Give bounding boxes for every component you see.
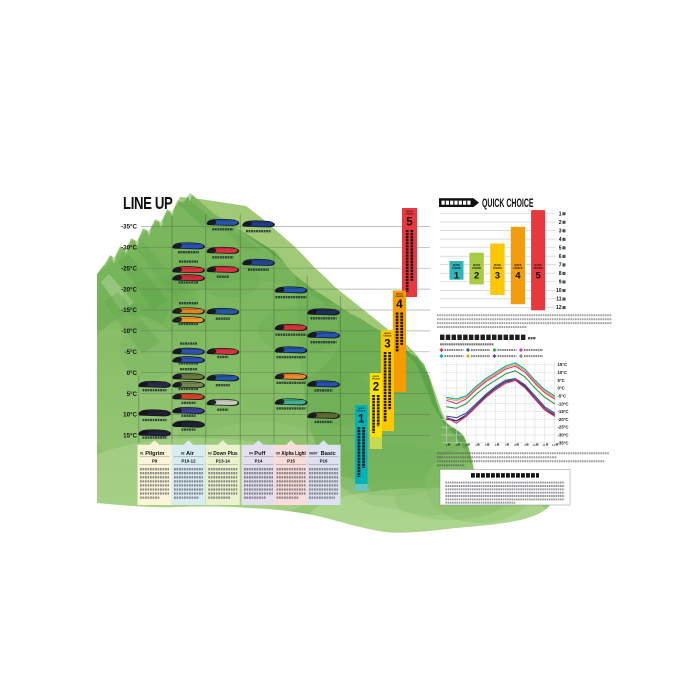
svg-text:1: 1	[358, 414, 365, 426]
svg-text:Air: Air	[186, 451, 195, 457]
svg-text:1: 1	[559, 211, 562, 217]
svg-text:-25°C: -25°C	[121, 265, 137, 272]
svg-text:12: 12	[552, 443, 556, 447]
svg-text:8: 8	[514, 443, 516, 447]
svg-text:1: 1	[454, 270, 460, 281]
svg-text:06/07: 06/07	[309, 452, 318, 456]
svg-text:-20°C: -20°C	[121, 286, 137, 293]
svg-text:5: 5	[406, 217, 413, 229]
svg-text:12: 12	[556, 305, 562, 311]
svg-text:8: 8	[559, 271, 562, 277]
svg-text:-35°C: -35°C	[121, 224, 137, 231]
svg-text:10: 10	[556, 288, 562, 294]
svg-text:P9: P9	[152, 459, 158, 464]
svg-text:15°C: 15°C	[123, 433, 137, 440]
svg-text:10°C: 10°C	[558, 370, 568, 375]
svg-text:QUICK: QUICK	[514, 265, 522, 267]
svg-text:-5°C: -5°C	[125, 349, 138, 356]
svg-text:-25°C: -25°C	[558, 425, 569, 430]
svg-text:9: 9	[559, 280, 562, 286]
svg-text:Basic: Basic	[321, 451, 336, 457]
svg-text:-10°C: -10°C	[558, 401, 569, 406]
svg-text:6: 6	[559, 254, 562, 260]
svg-text:CHOICE: CHOICE	[372, 379, 381, 381]
svg-text:5°C: 5°C	[127, 391, 138, 398]
svg-text:P14: P14	[255, 459, 263, 464]
svg-text:7: 7	[559, 262, 562, 268]
svg-text:11: 11	[542, 443, 545, 447]
svg-text:CHOICE: CHOICE	[357, 411, 366, 413]
svg-text:10°C: 10°C	[123, 412, 137, 419]
svg-text:-15°C: -15°C	[121, 307, 137, 314]
svg-text:0°C: 0°C	[558, 386, 565, 391]
svg-text:4: 4	[559, 237, 562, 243]
svg-text:4: 4	[515, 270, 521, 281]
svg-text:2: 2	[474, 270, 479, 281]
svg-text:7: 7	[505, 443, 507, 447]
svg-text:QUICK: QUICK	[453, 265, 461, 267]
svg-text:-10°C: -10°C	[121, 328, 137, 335]
svg-text:LINE UP: LINE UP	[123, 193, 173, 213]
svg-text:2: 2	[373, 382, 379, 394]
svg-text:05: 05	[276, 452, 280, 456]
svg-text:3: 3	[559, 228, 562, 234]
svg-text:3: 3	[384, 339, 390, 351]
svg-text:2: 2	[559, 220, 562, 226]
svg-text:-20°C: -20°C	[558, 417, 569, 422]
svg-text:01: 01	[140, 452, 144, 456]
svg-text:9: 9	[524, 443, 526, 447]
svg-text:Puff: Puff	[254, 451, 265, 457]
svg-text:6: 6	[495, 443, 497, 447]
svg-text:CHOICE: CHOICE	[383, 336, 392, 338]
svg-text:QUICK: QUICK	[473, 265, 481, 267]
svg-text:QUICK CHOICE: QUICK CHOICE	[482, 196, 534, 210]
svg-text:Pilgrim: Pilgrim	[145, 451, 164, 457]
svg-text:10: 10	[532, 443, 536, 447]
svg-text:0°C: 0°C	[127, 370, 138, 377]
svg-text:Alpha Light: Alpha Light	[281, 451, 306, 457]
svg-text:03: 03	[208, 452, 212, 456]
svg-text:P10-12: P10-12	[181, 459, 196, 464]
svg-text:02: 02	[181, 452, 185, 456]
svg-text:4: 4	[475, 443, 477, 447]
svg-text:3: 3	[495, 270, 500, 281]
svg-text:P16: P16	[320, 459, 328, 464]
svg-text:P15: P15	[287, 459, 295, 464]
svg-text:Down Plus: Down Plus	[213, 451, 238, 457]
svg-text:CHOICE: CHOICE	[405, 214, 414, 216]
svg-text:5°C: 5°C	[558, 378, 565, 383]
svg-text:15°C: 15°C	[558, 362, 568, 367]
svg-text:-35°C: -35°C	[558, 440, 569, 445]
svg-text:11: 11	[556, 297, 562, 303]
svg-text:P13-14: P13-14	[216, 459, 231, 464]
svg-text:QUICK: QUICK	[494, 265, 502, 267]
svg-text:-30°C: -30°C	[121, 245, 137, 252]
svg-text:-30°C: -30°C	[558, 433, 569, 438]
svg-text:-5°C: -5°C	[558, 393, 567, 398]
svg-text:5: 5	[535, 270, 541, 281]
svg-text:4: 4	[396, 299, 403, 311]
svg-text:-15°C: -15°C	[558, 409, 569, 414]
svg-text:CHOICE: CHOICE	[395, 296, 404, 298]
svg-text:QUICK: QUICK	[534, 265, 542, 267]
svg-text:5: 5	[485, 443, 487, 447]
svg-text:5: 5	[559, 245, 562, 251]
svg-text:04: 04	[249, 452, 253, 456]
